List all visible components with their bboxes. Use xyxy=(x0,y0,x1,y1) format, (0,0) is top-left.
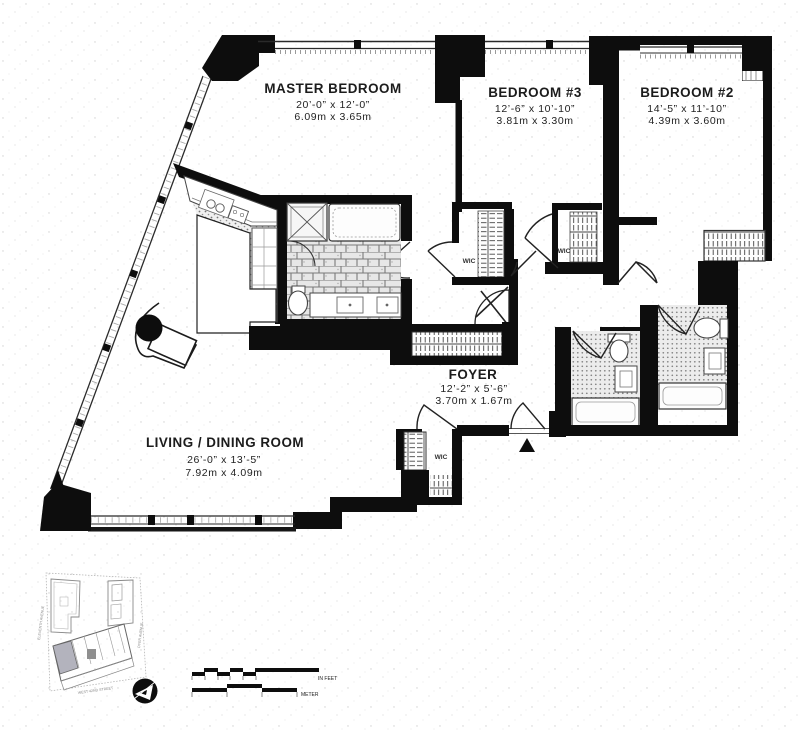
svg-text:3.70m x 1.67m: 3.70m x 1.67m xyxy=(435,395,512,407)
svg-text:METER: METER xyxy=(301,692,319,698)
svg-text:WIC: WIC xyxy=(435,454,448,461)
svg-text:6.09m x 3.65m: 6.09m x 3.65m xyxy=(294,111,371,123)
svg-text:3.81m x 3.30m: 3.81m x 3.30m xyxy=(496,115,573,127)
svg-text:12’-6” x 10’-10”: 12’-6” x 10’-10” xyxy=(495,103,575,115)
svg-text:26’-0” x 13’-5”: 26’-0” x 13’-5” xyxy=(187,454,261,466)
svg-text:FOYER: FOYER xyxy=(449,367,498,382)
svg-text:IN FEET: IN FEET xyxy=(318,676,337,682)
svg-text:4.39m x 3.60m: 4.39m x 3.60m xyxy=(648,115,725,127)
svg-text:LIVING / DINING ROOM: LIVING / DINING ROOM xyxy=(146,435,304,450)
svg-text:14’-5” x 11’-10”: 14’-5” x 11’-10” xyxy=(647,103,726,115)
svg-text:BEDROOM #3: BEDROOM #3 xyxy=(488,85,582,100)
svg-text:7.92m x 4.09m: 7.92m x 4.09m xyxy=(185,467,262,479)
svg-text:WIC: WIC xyxy=(463,258,476,265)
svg-text:WIC: WIC xyxy=(558,248,571,255)
svg-text:20’-0” x 12’-0”: 20’-0” x 12’-0” xyxy=(296,99,370,111)
svg-text:BEDROOM #2: BEDROOM #2 xyxy=(640,85,734,100)
svg-text:12’-2” x 5’-6”: 12’-2” x 5’-6” xyxy=(440,383,507,395)
svg-text:MASTER BEDROOM: MASTER BEDROOM xyxy=(264,81,401,96)
